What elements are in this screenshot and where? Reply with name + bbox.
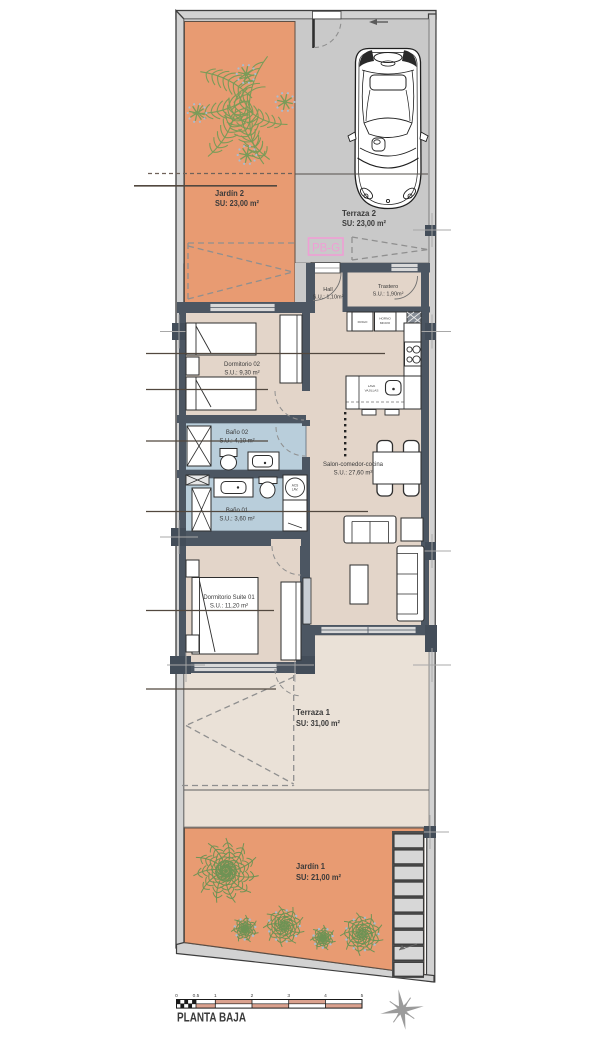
svg-text:Terraza 2: Terraza 2 [342, 209, 377, 218]
svg-text:2: 2 [251, 993, 254, 999]
svg-text:Hall: Hall [323, 287, 332, 293]
svg-text:Baño 01: Baño 01 [226, 508, 249, 514]
svg-text:4: 4 [324, 993, 327, 999]
svg-text:S.U.: 11,20 m²: S.U.: 11,20 m² [210, 604, 248, 610]
svg-text:0.5: 0.5 [193, 993, 200, 999]
svg-text:Terraza 1: Terraza 1 [296, 708, 331, 717]
svg-text:0: 0 [175, 993, 178, 999]
svg-text:Dormitorio 02: Dormitorio 02 [224, 362, 261, 368]
svg-text:MICRO: MICRO [380, 321, 391, 325]
svg-text:Salon-comedor-cocina: Salon-comedor-cocina [323, 462, 384, 468]
svg-text:Trastero: Trastero [378, 284, 398, 290]
svg-text:Jardín 1: Jardín 1 [296, 862, 326, 871]
svg-text:SU: 21,00 m²: SU: 21,00 m² [296, 873, 341, 882]
svg-text:SU: 23,00 m²: SU: 23,00 m² [215, 199, 259, 208]
svg-text:S.U.: 1,90m²: S.U.: 1,90m² [373, 292, 404, 298]
svg-text:S.U.: 1,10m²: S.U.: 1,10m² [313, 295, 344, 301]
svg-text:3: 3 [287, 993, 290, 999]
svg-text:LAVA: LAVA [368, 384, 376, 388]
svg-text:Dormitorio Suite 01: Dormitorio Suite 01 [203, 595, 255, 601]
svg-text:S.U.: 27,60 m²: S.U.: 27,60 m² [334, 471, 373, 477]
svg-text:FRIGO: FRIGO [358, 320, 368, 324]
svg-text:LAV.: LAV. [292, 488, 299, 492]
svg-text:5: 5 [361, 993, 364, 999]
svg-text:SU: 31,00 m²: SU: 31,00 m² [296, 719, 340, 728]
svg-text:Jardín 2: Jardín 2 [215, 189, 245, 198]
svg-text:SU: 23,00 m²: SU: 23,00 m² [342, 219, 386, 228]
svg-text:1: 1 [214, 993, 217, 999]
svg-text:PB-G: PB-G [312, 243, 340, 255]
svg-text:S.U.: 3,60 m²: S.U.: 3,60 m² [219, 517, 254, 523]
svg-text:PLANTA BAJA: PLANTA BAJA [177, 1011, 246, 1025]
svg-text:VAJILLAS: VAJILLAS [365, 389, 379, 393]
svg-text:S.U.: 4,10 m²: S.U.: 4,10 m² [219, 439, 254, 445]
svg-text:S.U.: 9,30 m²: S.U.: 9,30 m² [224, 371, 259, 377]
svg-text:HORNO: HORNO [379, 317, 391, 321]
svg-text:Baño 02: Baño 02 [226, 430, 249, 436]
